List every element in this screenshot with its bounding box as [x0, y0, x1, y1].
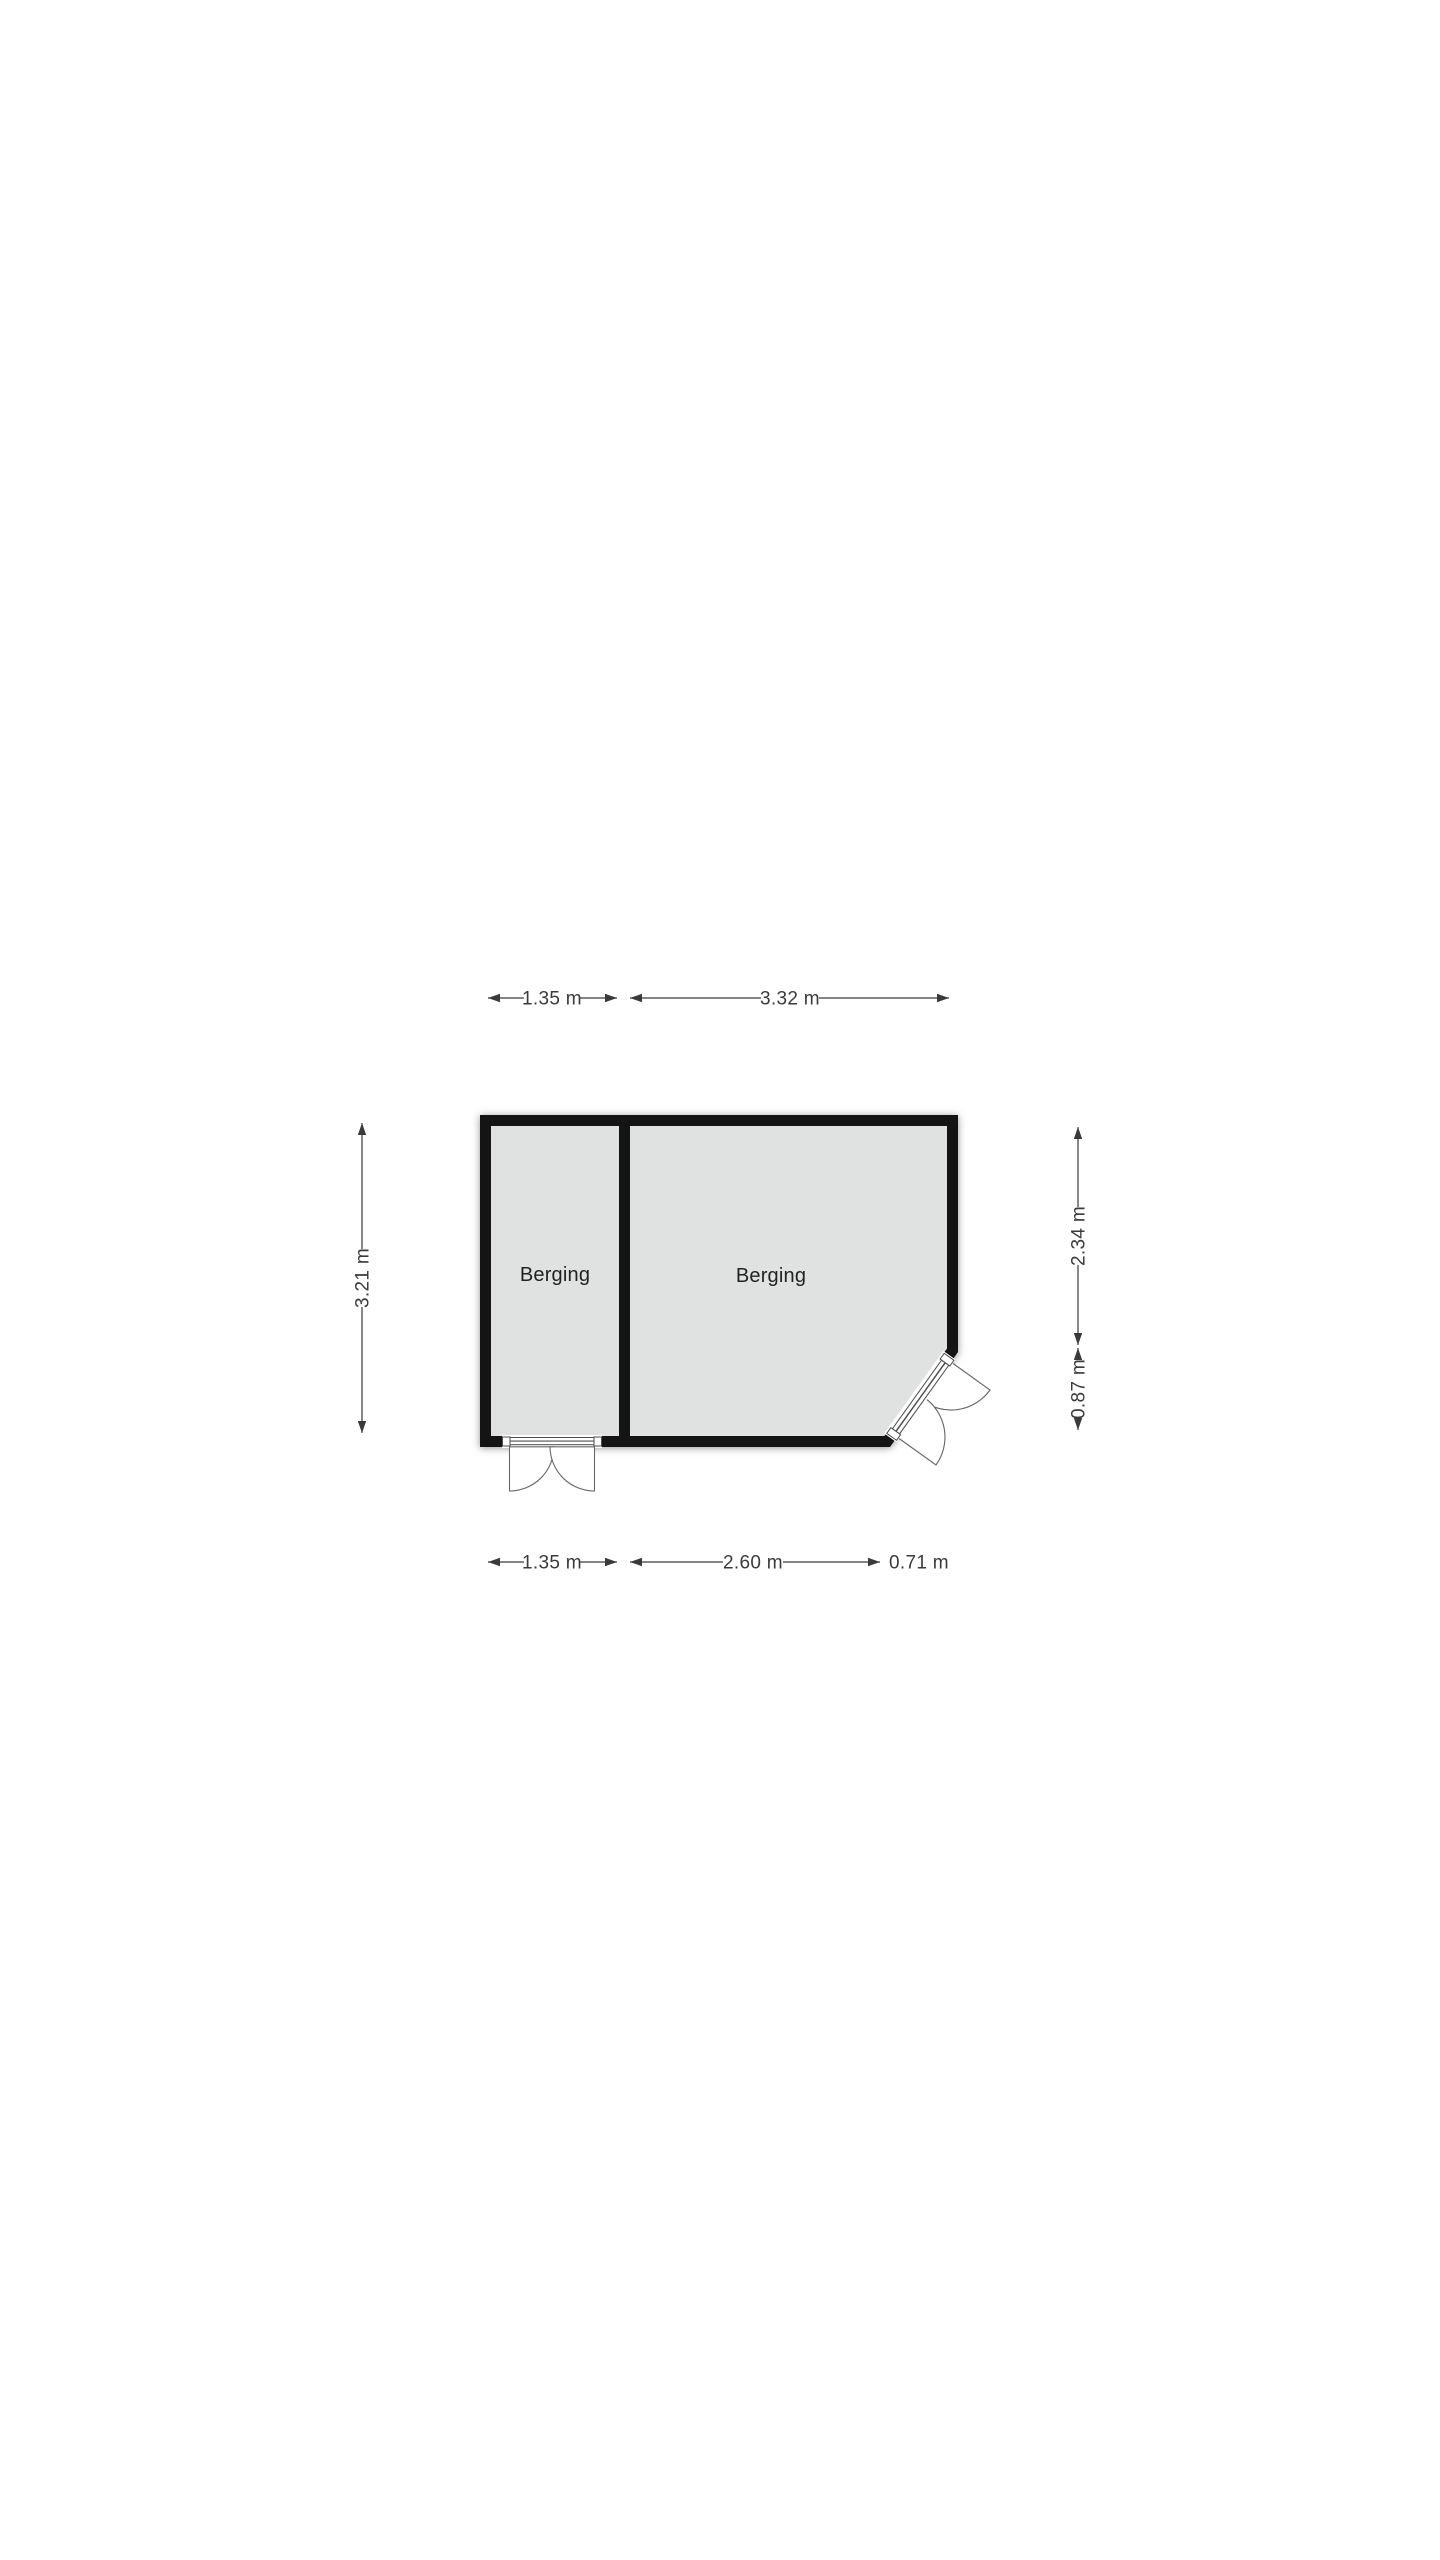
room-label-left: Berging	[520, 1264, 590, 1286]
arrow-up-icon	[358, 1123, 366, 1135]
dimension-top-1: 1.35 m	[488, 989, 617, 1010]
dimension-top-2: 3.32 m	[630, 989, 949, 1010]
dimension-bottom-1: 1.35 m	[488, 1553, 617, 1574]
arrow-right-icon	[937, 994, 949, 1002]
arrow-right-icon	[605, 1558, 617, 1566]
dimension-label: 0.71 m	[889, 1553, 949, 1574]
dimension-label: 0.87 m	[1069, 1359, 1090, 1419]
arrow-up-icon	[1074, 1348, 1082, 1360]
dimension-right-1: 2.34 m	[1069, 1127, 1090, 1345]
door-swing-arc-icon	[510, 1447, 555, 1491]
door-jamb	[594, 1437, 602, 1446]
arrow-left-icon	[488, 994, 500, 1002]
arrow-left-icon	[630, 994, 642, 1002]
divider-wall	[619, 1115, 630, 1447]
floorplan-page: Berging Berging 1.35 m 3.32 m 1.35 m 2.6…	[0, 0, 1440, 2560]
left-double-door	[502, 1435, 602, 1491]
arrow-left-icon	[488, 1558, 500, 1566]
dimension-label: 1.35 m	[522, 989, 582, 1010]
dimension-label: 2.34 m	[1069, 1206, 1090, 1266]
door-panel	[510, 1441, 594, 1445]
arrow-down-icon	[358, 1421, 366, 1433]
dimension-bottom-2: 2.60 m	[630, 1553, 880, 1574]
dimension-label: 1.35 m	[522, 1553, 582, 1574]
dimension-bottom-3: 0.71 m	[889, 1553, 949, 1574]
arrow-right-icon	[605, 994, 617, 1002]
dimension-left-1: 3.21 m	[353, 1123, 374, 1433]
door-panel	[510, 1438, 594, 1442]
dimension-label: 3.21 m	[353, 1248, 374, 1308]
door-swing-arc-icon	[550, 1447, 595, 1491]
dimension-label: 3.32 m	[760, 989, 820, 1010]
door-jamb	[503, 1437, 511, 1446]
arrow-left-icon	[630, 1558, 642, 1566]
arrow-down-icon	[1074, 1333, 1082, 1345]
dimension-label: 2.60 m	[723, 1553, 783, 1574]
arrow-right-icon	[868, 1558, 880, 1566]
arrow-up-icon	[1074, 1127, 1082, 1139]
room-label-right: Berging	[736, 1265, 806, 1287]
dimension-right-2: 0.87 m	[1069, 1348, 1090, 1430]
floorplan-drawing: Berging Berging 1.35 m 3.32 m 1.35 m 2.6…	[0, 0, 1440, 2560]
